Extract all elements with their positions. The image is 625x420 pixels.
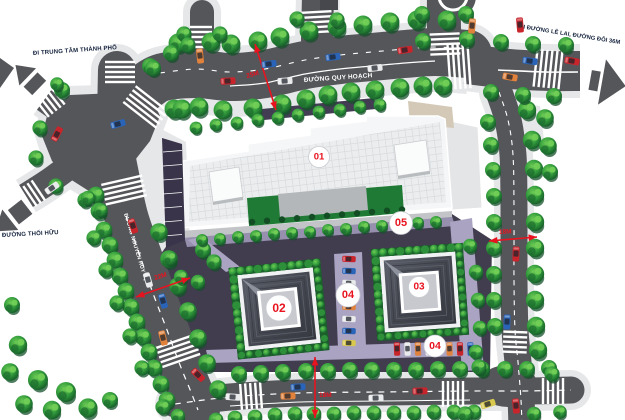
svg-text:01: 01 <box>314 152 325 163</box>
svg-text:04: 04 <box>429 340 441 352</box>
svg-text:04: 04 <box>342 289 355 301</box>
svg-text:18M: 18M <box>319 392 332 399</box>
svg-text:02: 02 <box>272 301 286 315</box>
svg-text:05: 05 <box>395 217 407 229</box>
svg-text:03: 03 <box>413 282 425 293</box>
svg-text:18M: 18M <box>499 228 512 236</box>
